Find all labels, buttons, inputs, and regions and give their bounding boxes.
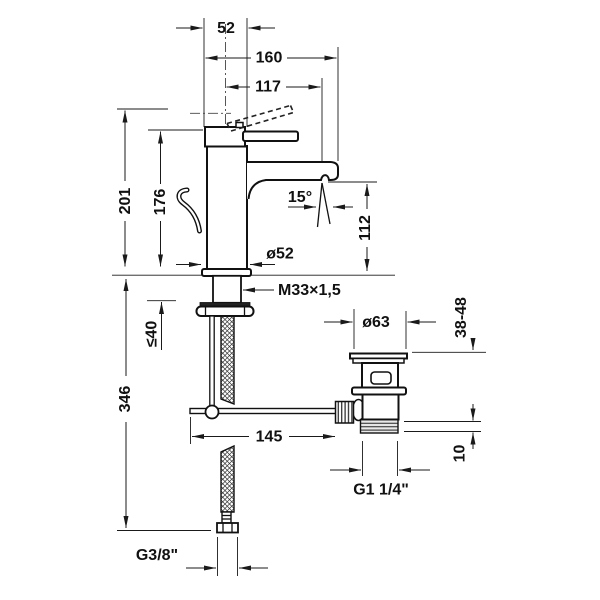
technical-drawing: 52 160 117 201 176 15° ø52 112 M33×1, bbox=[0, 0, 600, 600]
dim-145: 145 bbox=[192, 429, 335, 446]
dim-label-346: 346 bbox=[117, 386, 134, 413]
lever-pivot bbox=[236, 123, 243, 128]
knurled-nut bbox=[336, 402, 354, 424]
rod-ball-joint bbox=[206, 406, 219, 419]
overflow-window bbox=[371, 372, 391, 384]
hose-collar bbox=[222, 512, 231, 523]
lever-handle bbox=[243, 132, 298, 142]
dim-label-176: 176 bbox=[152, 189, 169, 216]
drain-thread bbox=[361, 420, 399, 434]
dim-label-160: 160 bbox=[256, 50, 283, 67]
dim-346: 346 bbox=[116, 279, 135, 528]
dim-label-201: 201 bbox=[117, 188, 134, 215]
hose-lower bbox=[221, 446, 234, 512]
faucet-dimension-drawing: 52 160 117 201 176 15° ø52 112 M33×1, bbox=[0, 0, 600, 600]
dim-dia63: ø63 bbox=[324, 314, 436, 331]
dim-max40: ≤40 bbox=[144, 302, 162, 350]
dim-201: 201 bbox=[116, 111, 135, 267]
dim-label-3848: 38-48 bbox=[453, 297, 470, 338]
dim-112: 112 bbox=[357, 184, 374, 271]
outlet-angle-lines bbox=[318, 183, 331, 227]
drain-mid-flange bbox=[352, 388, 406, 395]
dim-label-15deg: 15° bbox=[288, 189, 312, 206]
dim-label-117: 117 bbox=[255, 79, 281, 96]
dim-g114: G1 1/4" bbox=[330, 470, 430, 499]
dim-label-dia52: ø52 bbox=[266, 246, 294, 263]
handle-cap bbox=[205, 127, 245, 147]
dim-g38: G3/8" bbox=[136, 547, 268, 568]
pull-rod bbox=[210, 316, 214, 408]
dim-label-dia63: ø63 bbox=[362, 314, 390, 331]
dim-label-52: 52 bbox=[217, 20, 235, 37]
dim-label-145: 145 bbox=[256, 429, 283, 446]
hose-nut bbox=[217, 523, 238, 533]
dim-117: 117 bbox=[227, 79, 321, 96]
dim-3848: 38-48 bbox=[453, 297, 473, 350]
dim-label-m33: M33×1,5 bbox=[278, 282, 341, 299]
drain-body bbox=[363, 395, 399, 420]
dim-label-max40: ≤40 bbox=[144, 321, 161, 348]
supply-hose-and-rod bbox=[190, 316, 337, 533]
popup-drain-assembly bbox=[336, 354, 408, 434]
dim-label-10: 10 bbox=[452, 445, 469, 463]
pullrod-hook bbox=[179, 190, 200, 231]
mounting-shank bbox=[213, 276, 241, 303]
dim-52: 52 bbox=[176, 20, 275, 37]
dim-label-112: 112 bbox=[357, 215, 374, 241]
dim-176: 176 bbox=[151, 132, 170, 267]
dim-label-g114: G1 1/4" bbox=[353, 482, 409, 499]
dim-label-g38: G3/8" bbox=[136, 547, 178, 564]
faucet-body bbox=[207, 146, 247, 269]
hose-upper bbox=[221, 316, 234, 404]
dim-m33: M33×1,5 bbox=[243, 282, 341, 299]
dim-10: 10 bbox=[452, 404, 474, 462]
